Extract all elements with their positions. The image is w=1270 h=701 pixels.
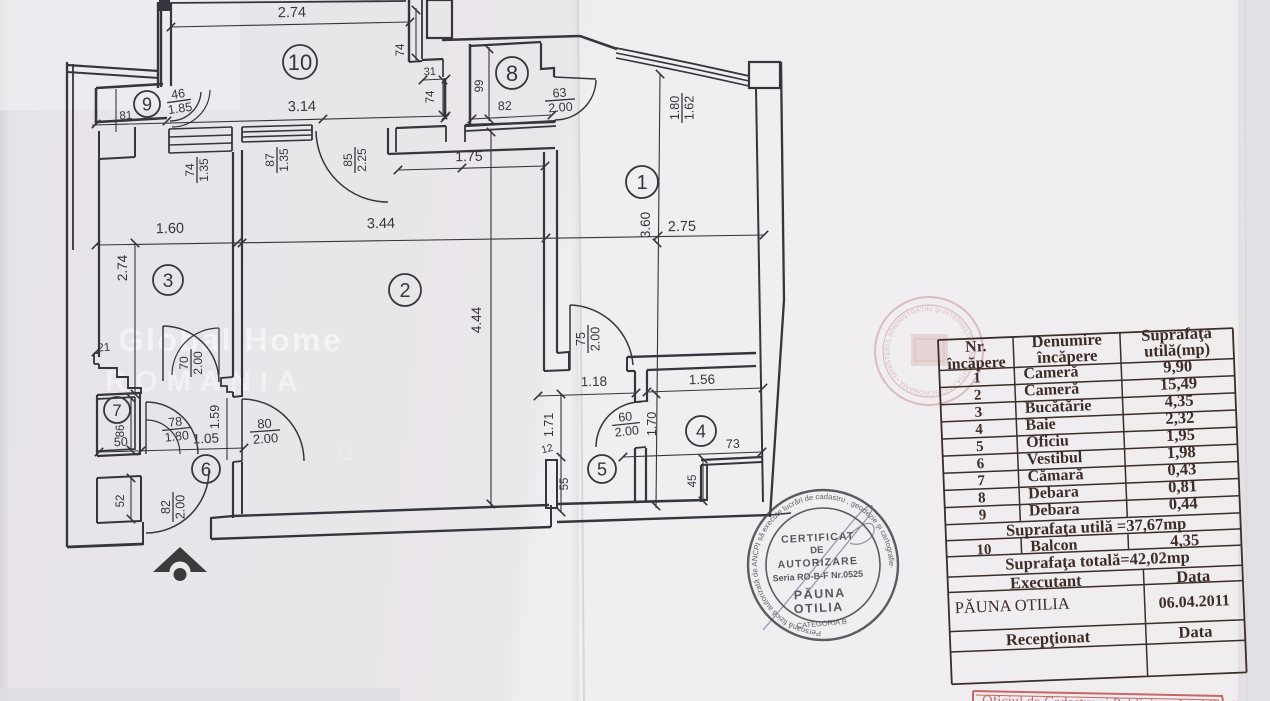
svg-text:2: 2 [399, 280, 410, 302]
svg-text:74: 74 [183, 163, 197, 177]
svg-text:81: 81 [119, 110, 132, 123]
svg-text:Baie: Baie [1025, 416, 1056, 434]
svg-text:3.14: 3.14 [288, 99, 317, 115]
svg-text:4.44: 4.44 [469, 306, 484, 333]
svg-text:2.25: 2.25 [355, 148, 369, 172]
svg-text:1.35: 1.35 [277, 148, 291, 172]
svg-text:3.60: 3.60 [638, 212, 653, 238]
svg-text:52: 52 [115, 495, 127, 508]
svg-text:Nr.: Nr. [965, 338, 987, 356]
svg-text:Cămară: Cămară [1027, 466, 1084, 485]
svg-text:0,44: 0,44 [1168, 493, 1198, 513]
svg-text:2.00: 2.00 [548, 100, 573, 116]
svg-text:7: 7 [977, 473, 986, 489]
svg-text:Global Home: Global Home [119, 322, 344, 358]
svg-text:1.35: 1.35 [197, 158, 211, 182]
svg-text:46: 46 [170, 86, 186, 102]
svg-text:Debara: Debara [1029, 501, 1080, 520]
svg-text:1.62: 1.62 [683, 96, 697, 120]
svg-text:2.00: 2.00 [174, 495, 188, 519]
svg-text:Recepţionat: Recepţionat [1006, 627, 1092, 649]
svg-text:82: 82 [159, 500, 173, 514]
svg-text:2.00: 2.00 [614, 423, 640, 439]
svg-text:3: 3 [163, 271, 174, 292]
svg-text:4: 4 [975, 422, 984, 438]
svg-text:1.56: 1.56 [689, 372, 716, 387]
svg-text:Data: Data [1176, 566, 1211, 586]
svg-text:6: 6 [976, 456, 985, 472]
svg-text:10: 10 [288, 50, 312, 75]
svg-text:1.80: 1.80 [164, 428, 190, 444]
svg-text:7: 7 [112, 401, 121, 420]
svg-text:1: 1 [636, 172, 647, 194]
svg-text:1.60: 1.60 [156, 221, 185, 237]
svg-text:5: 5 [976, 439, 984, 455]
svg-text:2.00: 2.00 [589, 327, 603, 351]
svg-text:5: 5 [597, 459, 607, 479]
svg-text:74: 74 [395, 43, 407, 56]
svg-text:99: 99 [474, 80, 486, 93]
svg-text:8: 8 [506, 61, 518, 86]
svg-text:Data: Data [1178, 622, 1213, 642]
svg-text:82: 82 [498, 99, 512, 113]
svg-text:DE: DE [810, 545, 824, 557]
svg-text:2.00: 2.00 [191, 351, 205, 375]
svg-text:Cameră: Cameră [1023, 363, 1079, 382]
svg-text:Vestibul: Vestibul [1027, 449, 1084, 468]
svg-text:1.70: 1.70 [645, 412, 659, 436]
svg-text:Bucătărie: Bucătărie [1024, 397, 1091, 417]
svg-text:31: 31 [423, 66, 436, 79]
svg-text:55: 55 [559, 478, 571, 491]
svg-text:74: 74 [425, 90, 437, 103]
svg-text:2: 2 [974, 387, 982, 403]
svg-text:OTILIA: OTILIA [793, 600, 844, 617]
svg-text:3.44: 3.44 [367, 216, 396, 232]
svg-text:4: 4 [696, 421, 706, 441]
svg-text:3: 3 [974, 405, 982, 421]
svg-text:9: 9 [979, 507, 987, 523]
svg-text:06.04.2011: 06.04.2011 [1158, 592, 1230, 612]
svg-text:Cameră: Cameră [1024, 380, 1080, 399]
svg-text:87: 87 [263, 153, 277, 167]
svg-text:Oficiu: Oficiu [1026, 432, 1069, 451]
svg-text:75: 75 [574, 332, 588, 346]
svg-text:2.00: 2.00 [252, 430, 278, 447]
svg-text:1.18: 1.18 [581, 374, 608, 389]
svg-text:70: 70 [177, 356, 191, 370]
svg-text:9: 9 [142, 94, 152, 114]
svg-text:2.74: 2.74 [278, 5, 307, 21]
svg-text:2.75: 2.75 [668, 219, 697, 235]
svg-text:⌂: ⌂ [336, 434, 354, 467]
svg-text:63: 63 [552, 86, 567, 101]
svg-text:6: 6 [201, 460, 212, 481]
svg-text:60: 60 [618, 409, 633, 424]
svg-text:73: 73 [726, 437, 740, 451]
svg-text:85: 85 [341, 153, 355, 167]
svg-text:1: 1 [973, 370, 981, 386]
svg-text:Debara: Debara [1028, 483, 1079, 502]
svg-text:86: 86 [115, 425, 127, 438]
svg-text:2.74: 2.74 [115, 254, 130, 281]
svg-text:10: 10 [976, 542, 992, 559]
svg-text:1.71: 1.71 [542, 413, 556, 437]
svg-text:Executant: Executant [1010, 571, 1083, 593]
svg-text:78: 78 [168, 414, 183, 429]
svg-text:1.05: 1.05 [192, 431, 219, 447]
svg-text:80: 80 [257, 416, 272, 432]
svg-text:45: 45 [687, 475, 699, 488]
svg-text:8: 8 [978, 490, 986, 506]
svg-text:1.59: 1.59 [208, 405, 222, 429]
svg-text:1.80: 1.80 [668, 96, 682, 120]
svg-text:1.75: 1.75 [455, 148, 483, 164]
